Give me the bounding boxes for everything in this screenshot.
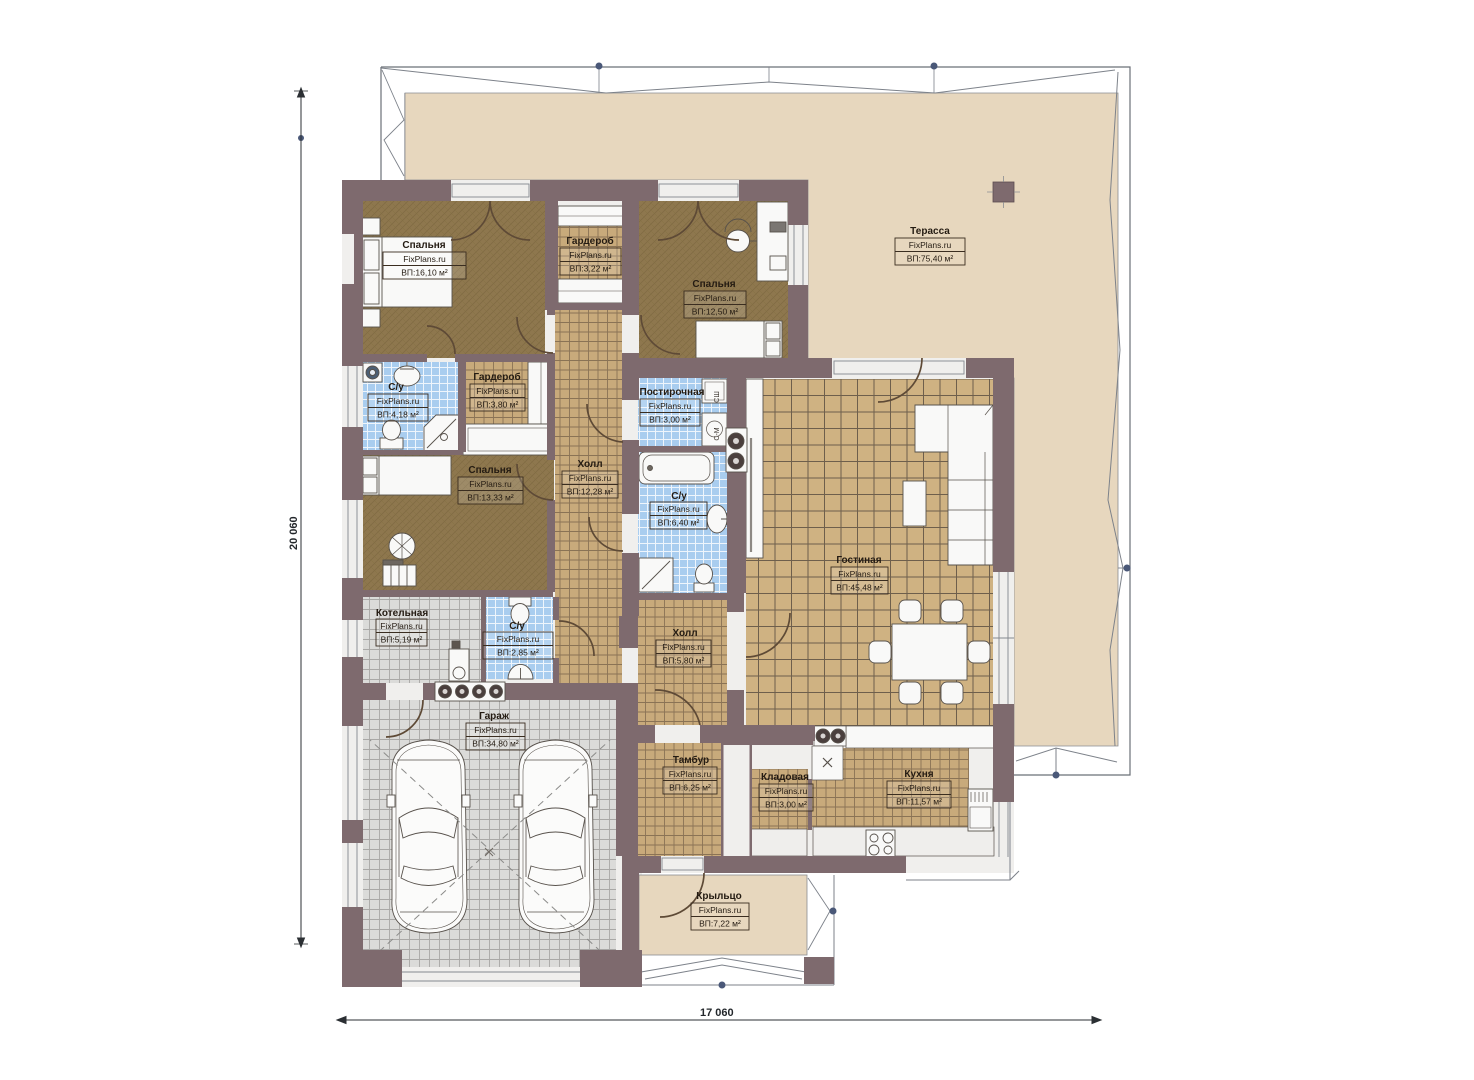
svg-text:ВП:12,50 м²: ВП:12,50 м² <box>692 307 739 317</box>
svg-text:17 060: 17 060 <box>700 1007 734 1019</box>
svg-text:FixPlans.ru: FixPlans.ru <box>474 725 517 735</box>
svg-text:ВП:34,80 м²: ВП:34,80 м² <box>472 739 519 749</box>
svg-text:FixPlans.ru: FixPlans.ru <box>909 240 952 250</box>
svg-text:С-М: С-М <box>714 427 721 440</box>
svg-text:ВП:4,18 м²: ВП:4,18 м² <box>377 410 419 420</box>
svg-text:С/у: С/у <box>388 382 404 393</box>
svg-text:FixPlans.ru: FixPlans.ru <box>497 634 540 644</box>
svg-text:ВП:6,40 м²: ВП:6,40 м² <box>658 518 700 528</box>
svg-text:ВП:6,25 м²: ВП:6,25 м² <box>669 783 711 793</box>
svg-text:ВП:3,00 м²: ВП:3,00 м² <box>765 800 807 810</box>
svg-text:ВП:12,28 м²: ВП:12,28 м² <box>567 487 614 497</box>
svg-text:Спальня: Спальня <box>468 465 511 476</box>
svg-text:FixPlans.ru: FixPlans.ru <box>569 473 612 483</box>
svg-text:FixPlans.ru: FixPlans.ru <box>377 396 420 406</box>
svg-text:Постирочная: Постирочная <box>640 387 705 398</box>
svg-text:FixPlans.ru: FixPlans.ru <box>569 250 612 260</box>
svg-text:Гостиная: Гостиная <box>836 555 881 566</box>
svg-text:ВП:11,57 м²: ВП:11,57 м² <box>896 797 942 807</box>
svg-text:Гардероб: Гардероб <box>473 371 520 383</box>
svg-text:FixPlans.ru: FixPlans.ru <box>694 293 737 303</box>
svg-text:FixPlans.ru: FixPlans.ru <box>662 642 705 652</box>
svg-text:ВП:16,10 м²: ВП:16,10 м² <box>401 268 448 278</box>
svg-text:ВП:3,00 м²: ВП:3,00 м² <box>649 415 691 425</box>
svg-text:Гараж: Гараж <box>479 711 510 722</box>
svg-text:FixPlans.ru: FixPlans.ru <box>649 401 692 411</box>
svg-text:FixPlans.ru: FixPlans.ru <box>765 786 808 796</box>
svg-text:СШ: СШ <box>714 391 721 402</box>
svg-text:Терасса: Терасса <box>910 226 950 237</box>
svg-text:20 060: 20 060 <box>288 516 300 550</box>
svg-text:FixPlans.ru: FixPlans.ru <box>403 254 446 264</box>
svg-text:Кладовая: Кладовая <box>761 772 809 783</box>
svg-text:Спальня: Спальня <box>402 240 445 251</box>
svg-text:ВП:5,19 м²: ВП:5,19 м² <box>381 635 423 645</box>
svg-text:Холл: Холл <box>577 459 602 470</box>
svg-text:Тамбур: Тамбур <box>673 754 709 766</box>
svg-text:ВП:3,22 м²: ВП:3,22 м² <box>570 264 612 274</box>
svg-text:С/у: С/у <box>509 621 525 632</box>
svg-text:Котельная: Котельная <box>376 608 429 619</box>
svg-text:Холл: Холл <box>672 628 697 639</box>
svg-text:FixPlans.ru: FixPlans.ru <box>669 769 712 779</box>
svg-text:FixPlans.ru: FixPlans.ru <box>469 479 512 489</box>
svg-text:ВП:13,33 м²: ВП:13,33 м² <box>467 493 514 503</box>
svg-text:ВП:2,85 м²: ВП:2,85 м² <box>497 648 539 658</box>
svg-text:FixPlans.ru: FixPlans.ru <box>898 783 941 793</box>
svg-text:FixPlans.ru: FixPlans.ru <box>838 569 881 579</box>
svg-text:ВП:45,48 м²: ВП:45,48 м² <box>836 583 883 593</box>
svg-text:FixPlans.ru: FixPlans.ru <box>476 386 519 396</box>
svg-text:Гардероб: Гардероб <box>566 235 613 247</box>
svg-text:ВП:3,80 м²: ВП:3,80 м² <box>477 400 519 410</box>
svg-text:FixPlans.ru: FixPlans.ru <box>657 504 700 514</box>
svg-text:FixPlans.ru: FixPlans.ru <box>699 905 742 915</box>
svg-text:С/у: С/у <box>671 491 687 502</box>
svg-text:ВП:75,40 м²: ВП:75,40 м² <box>907 254 954 264</box>
svg-text:Кухня: Кухня <box>904 769 933 780</box>
svg-text:Крыльцо: Крыльцо <box>696 891 742 902</box>
svg-text:ВП:5,80 м²: ВП:5,80 м² <box>663 656 705 666</box>
svg-text:Спальня: Спальня <box>692 279 735 290</box>
svg-text:FixPlans.ru: FixPlans.ru <box>380 621 423 631</box>
svg-text:ВП:7,22 м²: ВП:7,22 м² <box>699 919 741 929</box>
